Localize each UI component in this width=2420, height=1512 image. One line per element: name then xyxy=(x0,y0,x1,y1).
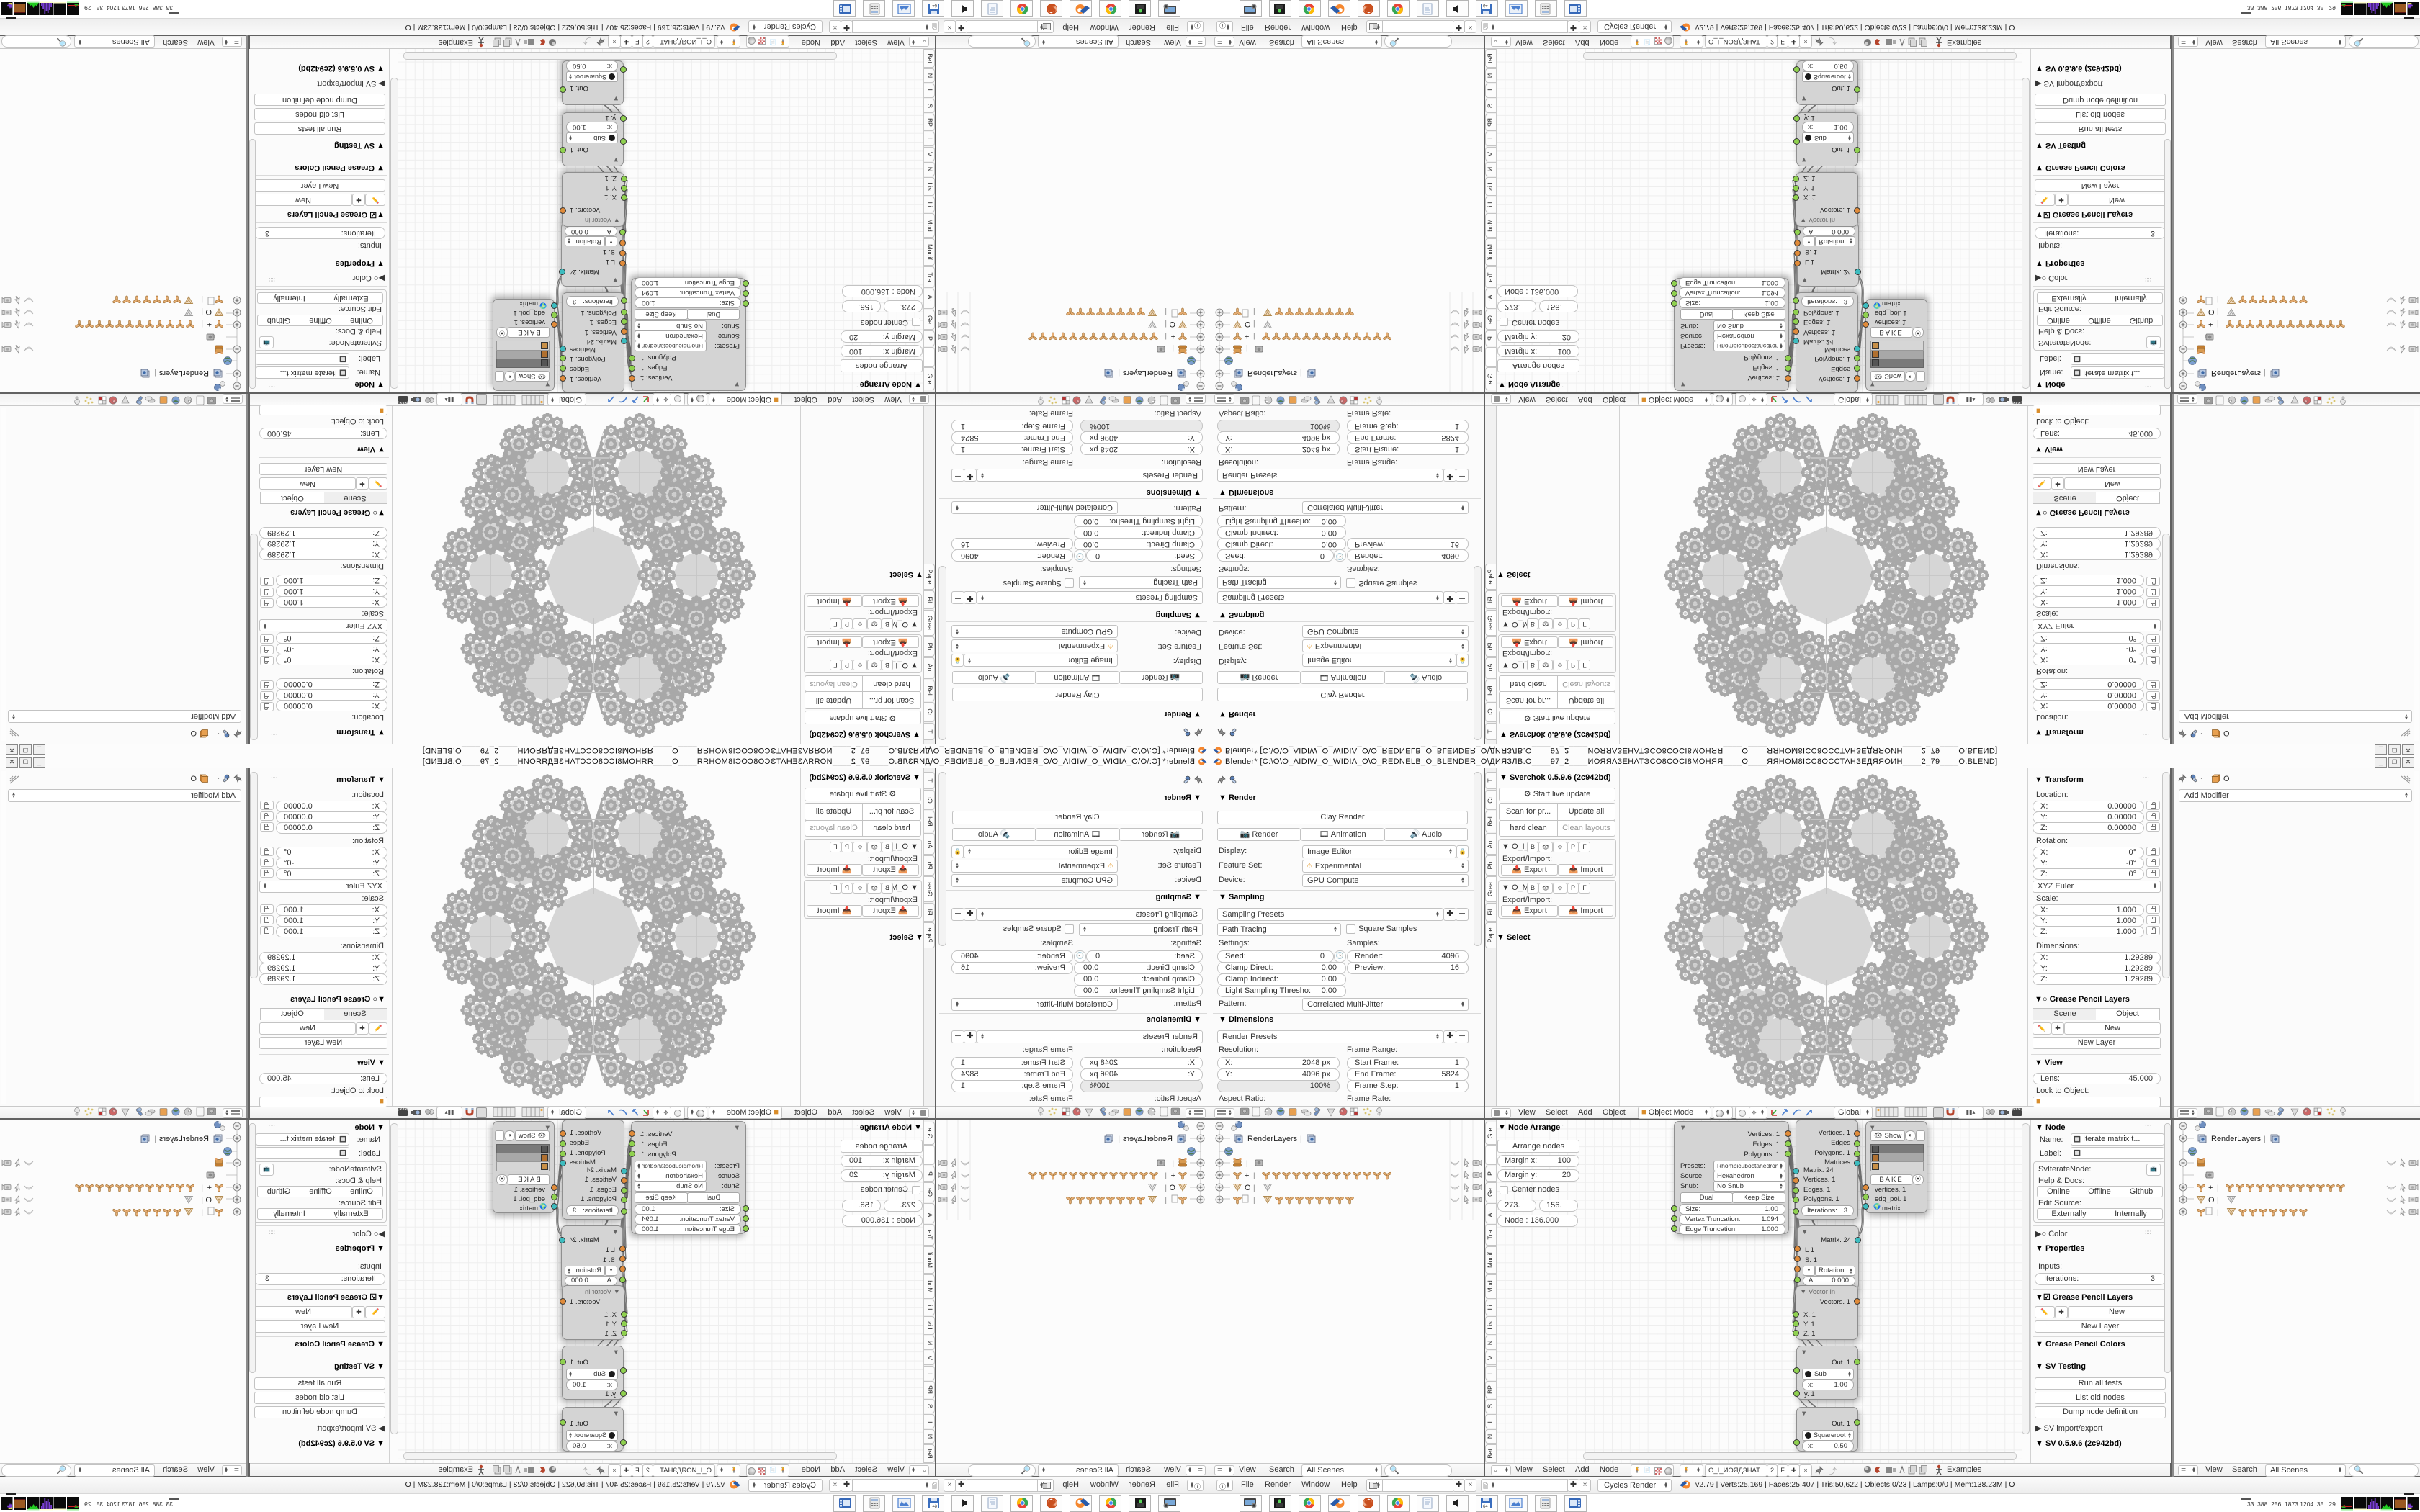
svg-text:|: | xyxy=(1253,332,1255,340)
svg-text:+: + xyxy=(2208,320,2213,328)
svg-text:64: 64 xyxy=(932,1505,937,1509)
svg-text:RenderLayers: RenderLayers xyxy=(158,369,209,377)
svg-text:|: | xyxy=(2217,1184,2219,1192)
svg-text:|: | xyxy=(1253,1184,1255,1192)
svg-text:O: O xyxy=(1169,320,1175,328)
svg-text:64: 64 xyxy=(1483,3,1488,7)
svg-text:|: | xyxy=(1253,1172,1255,1180)
svg-text:|: | xyxy=(1165,307,1167,315)
svg-text:|: | xyxy=(201,1197,203,1205)
svg-text:|: | xyxy=(2264,369,2266,377)
svg-text:+: + xyxy=(207,1184,212,1192)
svg-text:|: | xyxy=(201,1184,203,1192)
svg-text:O: O xyxy=(1245,320,1251,328)
svg-text:64: 64 xyxy=(1483,1505,1488,1509)
svg-text:RenderLayers: RenderLayers xyxy=(1247,1135,1298,1143)
svg-text:|: | xyxy=(2217,1197,2219,1205)
svg-text:|: | xyxy=(154,369,156,377)
svg-text:|: | xyxy=(2264,1135,2266,1143)
svg-text:|: | xyxy=(1165,332,1167,340)
svg-text:|: | xyxy=(1300,369,1302,377)
svg-text:+: + xyxy=(2208,1184,2213,1192)
svg-text:|: | xyxy=(154,1135,156,1143)
svg-text:|: | xyxy=(1165,1197,1167,1205)
svg-text:|: | xyxy=(1253,307,1255,315)
svg-text:O: O xyxy=(1169,1184,1175,1192)
svg-text:|: | xyxy=(1253,320,1255,328)
svg-text:RenderLayers: RenderLayers xyxy=(1247,369,1298,377)
svg-text:RenderLayers: RenderLayers xyxy=(2211,1135,2262,1143)
svg-text:|: | xyxy=(201,295,203,303)
svg-text:|: | xyxy=(1165,1184,1167,1192)
svg-text:|: | xyxy=(2217,1209,2219,1217)
svg-text:|: | xyxy=(1300,1135,1302,1143)
svg-text:RenderLayers: RenderLayers xyxy=(158,1135,209,1143)
svg-text:RenderLayers: RenderLayers xyxy=(1122,1135,1173,1143)
svg-text:+: + xyxy=(1171,332,1175,341)
svg-text:|: | xyxy=(1246,344,1248,352)
svg-text:|: | xyxy=(1165,320,1167,328)
svg-text:O: O xyxy=(2208,1196,2215,1205)
svg-text:+: + xyxy=(1245,1171,1249,1180)
svg-text:+: + xyxy=(1245,332,1249,341)
svg-text:RenderLayers: RenderLayers xyxy=(1122,369,1173,377)
svg-text:|: | xyxy=(201,307,203,315)
svg-text:|: | xyxy=(201,320,203,328)
svg-text:|: | xyxy=(201,1209,203,1217)
svg-text:O: O xyxy=(1245,1184,1251,1192)
svg-text:|: | xyxy=(2217,320,2219,328)
svg-text:+: + xyxy=(1171,1171,1175,1180)
svg-text:|: | xyxy=(1118,1135,1120,1143)
svg-text:|: | xyxy=(1172,344,1174,352)
svg-text:RenderLayers: RenderLayers xyxy=(2211,369,2262,377)
svg-text:|: | xyxy=(1118,369,1120,377)
svg-text:64: 64 xyxy=(932,3,937,7)
svg-text:|: | xyxy=(2217,295,2219,303)
svg-text:|: | xyxy=(1246,1160,1248,1168)
svg-text:|: | xyxy=(1253,1197,1255,1205)
svg-text:O: O xyxy=(2208,307,2215,316)
svg-text:|: | xyxy=(2217,307,2219,315)
svg-text:|: | xyxy=(1172,1160,1174,1168)
svg-text:O: O xyxy=(205,1196,212,1205)
svg-text:O: O xyxy=(205,307,212,316)
svg-text:+: + xyxy=(207,320,212,328)
svg-text:|: | xyxy=(1165,1172,1167,1180)
